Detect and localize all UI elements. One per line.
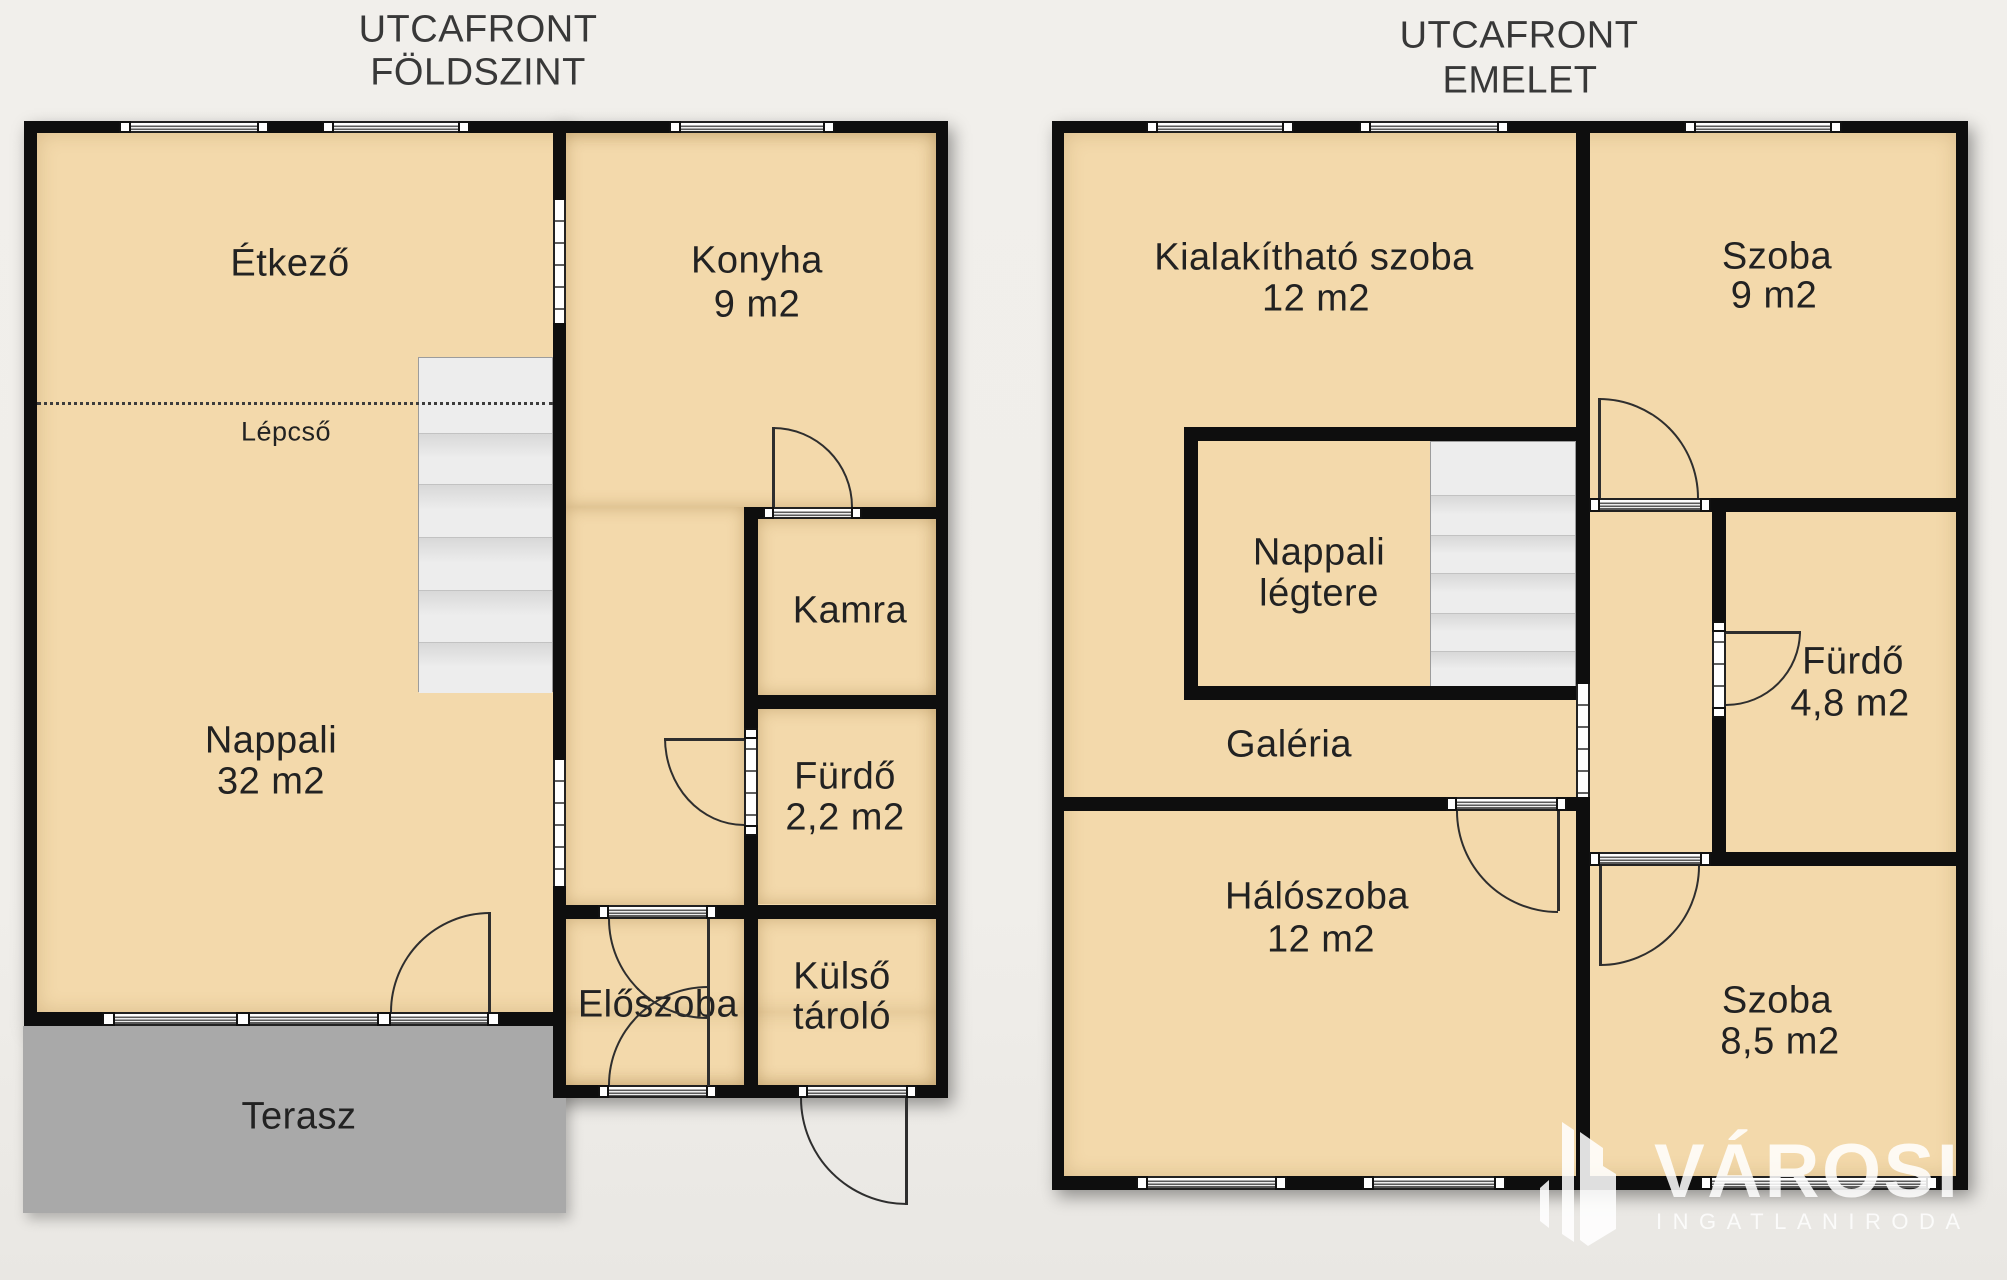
- svg-text:VÁROSI: VÁROSI: [1654, 1129, 1960, 1214]
- svg-text:INGATLANIRODA: INGATLANIRODA: [1656, 1209, 1971, 1234]
